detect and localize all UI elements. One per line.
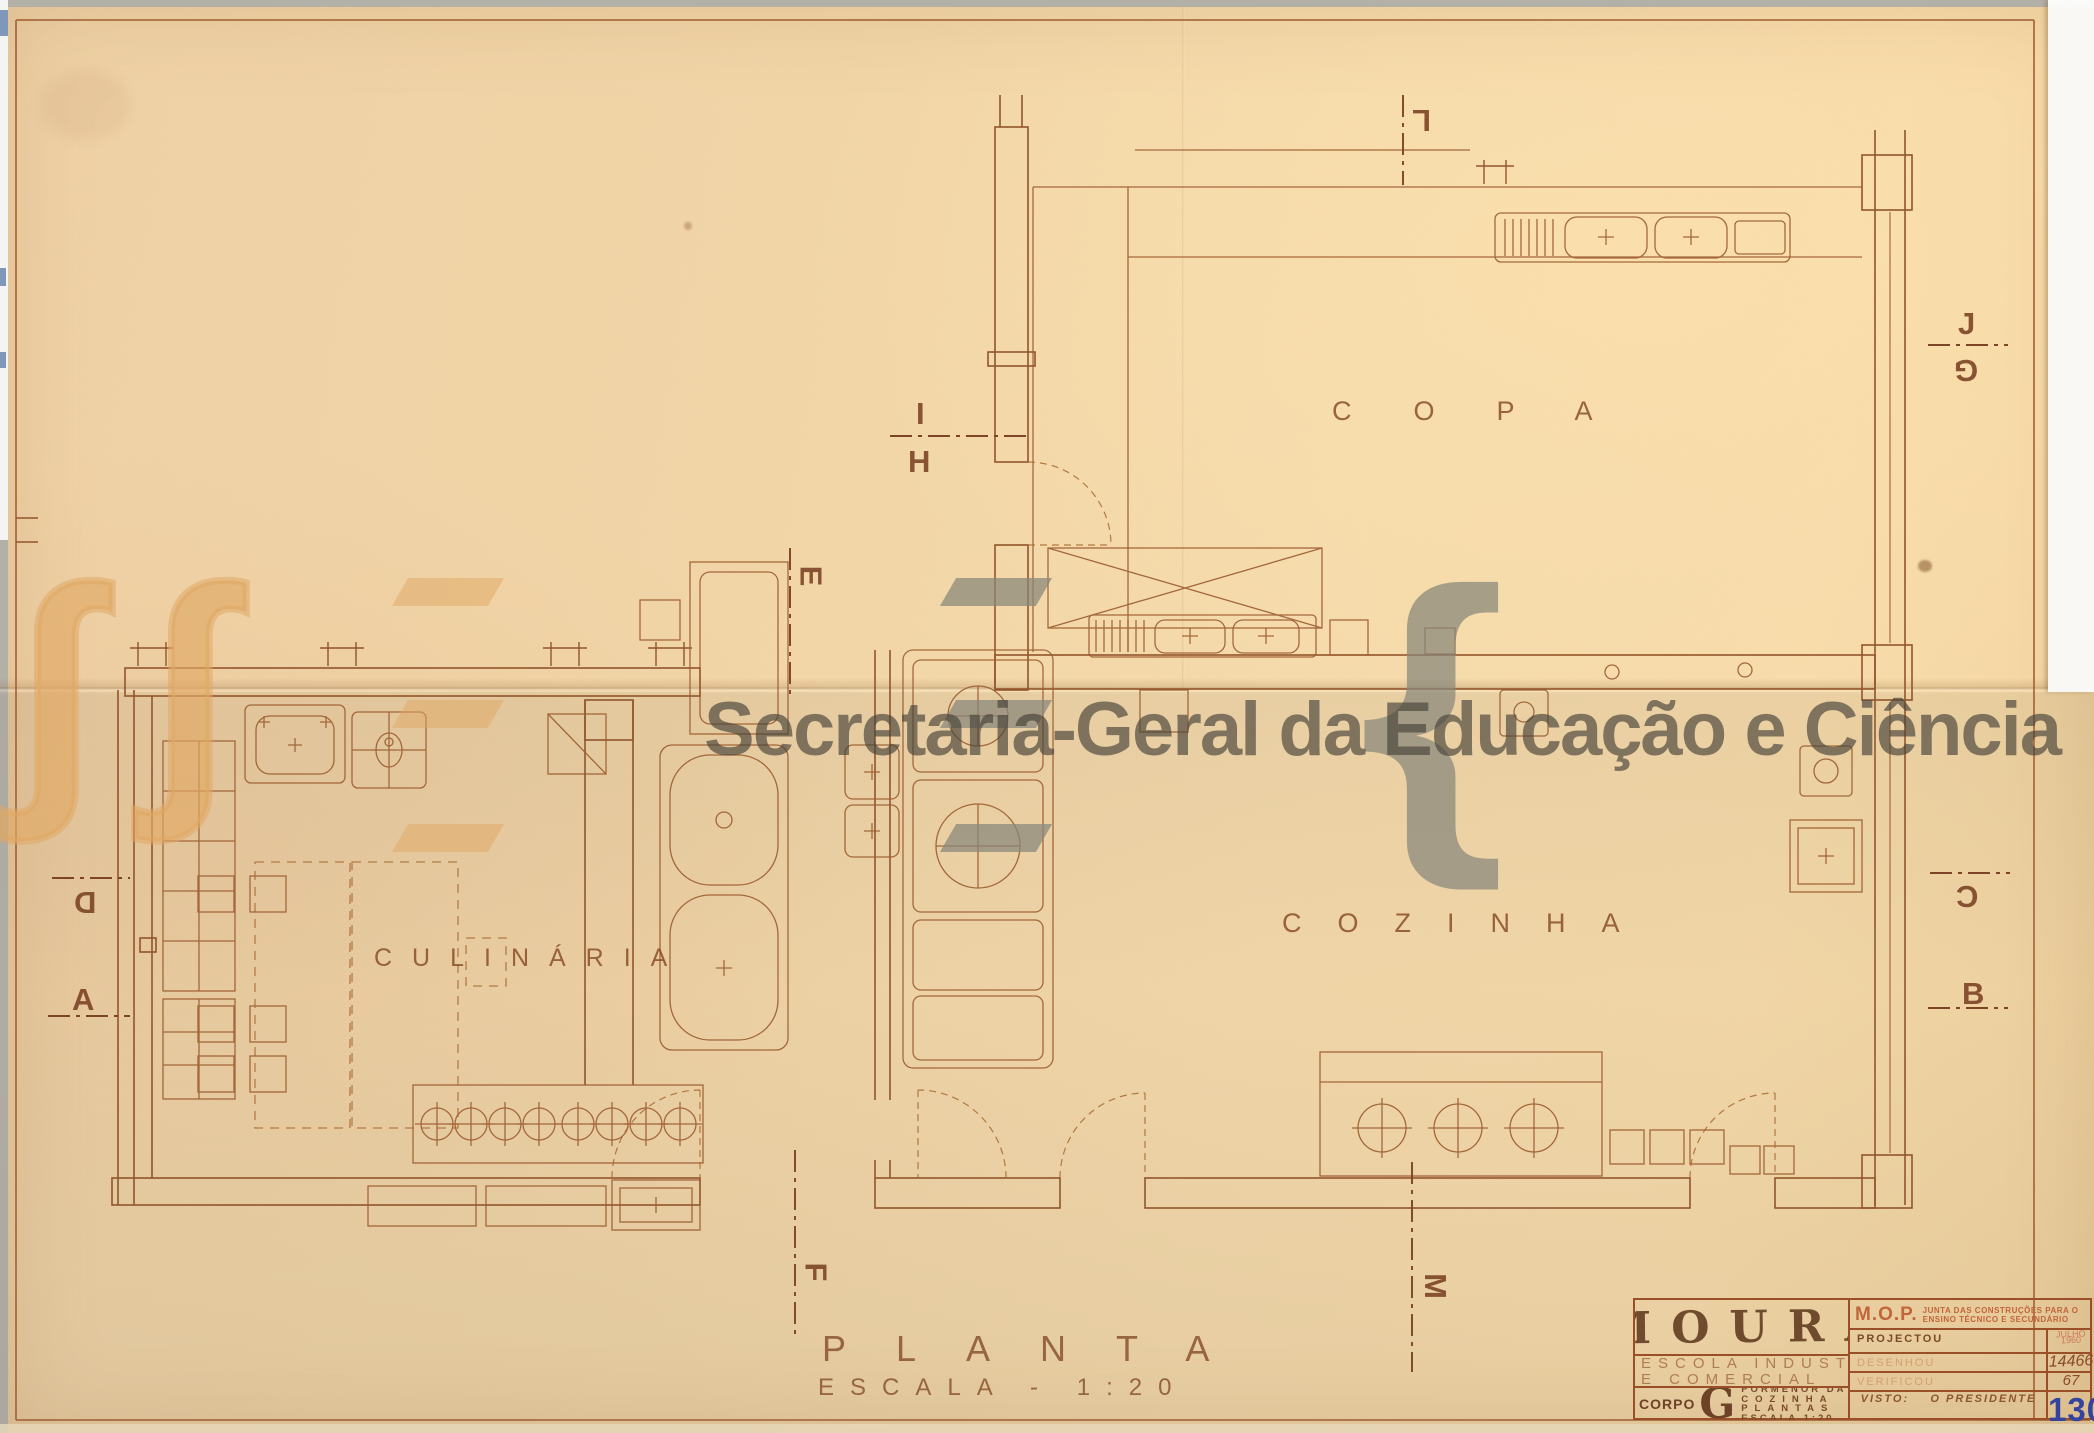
section-marker-c: C (1956, 878, 1978, 914)
title-block: MOURA ESCOLA INDUSTRIAL E COMERCIAL CORP… (1633, 1298, 2092, 1420)
watermark-logo-bar-icon (940, 578, 1052, 606)
ministry-subtitle: JUNTA DAS CONSTRUÇÕES PARA O ENSINO TÉCN… (1923, 1306, 2079, 1324)
watermark-logo-bar-icon (392, 824, 504, 852)
watermark-logo-stroke-icon: ∫ (18, 548, 93, 823)
section-marker-j: J (1958, 306, 1975, 342)
plan-title: PLANTA (822, 1328, 1259, 1370)
section-marker-m: M (1417, 1273, 1453, 1299)
sheet-number: 130 (2048, 1391, 2094, 1429)
section-marker-a: A (72, 982, 94, 1018)
school-name: ESCOLA INDUSTRIAL E COMERCIAL (1641, 1356, 1848, 1386)
section-marker-e: E (792, 566, 828, 587)
corpo-cell: CORPO G PORMENOR DA COZINHA PLANTAS ESCA… (1639, 1388, 1848, 1420)
ministry-subtitle-line: JUNTA DAS CONSTRUÇÕES PARA O (1923, 1306, 2079, 1315)
aux-number: 67 (2048, 1372, 2094, 1389)
ministry-acronym: M.O.P. (1855, 1304, 1918, 1326)
school-name-line2: E COMERCIAL (1641, 1372, 1848, 1386)
room-label-cozinha: COZINHA (1282, 908, 1656, 939)
watermark-logo-bar-icon (940, 824, 1052, 852)
section-marker-l: L (1412, 102, 1431, 138)
watermark-logo-bar-icon (392, 578, 504, 606)
school-name-line1: ESCOLA INDUSTRIAL (1641, 1356, 1848, 1372)
date-stamp-year: 1960 (2048, 1335, 2094, 1346)
room-label-copa: COPA (1332, 396, 1655, 427)
ministry-subtitle-line: ENSINO TÉCNICO E SECUNDÁRIO (1923, 1315, 2079, 1324)
plan-scale: ESCALA - 1:20 (818, 1374, 1187, 1402)
row-label-verificou: VERIFICOU (1857, 1376, 1935, 1388)
watermark-logo-stroke-icon: ∫ (152, 548, 227, 823)
section-marker-d: D (74, 884, 96, 920)
section-marker-b: B (1962, 976, 1984, 1012)
watermark-logo-bar-icon (392, 700, 504, 728)
visto-label: VISTO: (1861, 1393, 1909, 1405)
row-label-desenhou: DESENHOU (1857, 1357, 1935, 1369)
contractor-stamp: MOURA (1635, 1299, 1849, 1355)
corpo-label: CORPO (1639, 1396, 1695, 1412)
room-label-culinaria: CULINÁRIA (374, 944, 687, 973)
drawing-subject: PORMENOR DA COZINHA PLANTAS ESCALA 1:20 (1741, 1388, 1846, 1420)
drawing-subject-line: ESCALA 1:20 (1741, 1414, 1846, 1421)
section-marker-g: G (1954, 352, 1978, 388)
row-label-projectou: PROJECTOU (1857, 1333, 1943, 1345)
ministry-header: M.O.P. JUNTA DAS CONSTRUÇÕES PARA O ENSI… (1850, 1301, 2092, 1328)
section-marker-f: F (797, 1263, 833, 1282)
date-stamp: JULHO 1960 (2048, 1329, 2094, 1353)
process-number: 14466 (2048, 1352, 2094, 1372)
section-marker-i: I (916, 396, 925, 432)
section-marker-h: H (908, 444, 930, 480)
watermark-text: Secretaria-Geral da Educação e Ciência (704, 686, 2060, 773)
scanned-drawing-page: COPA COZINHA CULINÁRIA PLANTA ESCALA - 1… (0, 0, 2094, 1433)
corpo-letter: G (1699, 1389, 1735, 1419)
visto-value: O PRESIDENTE (1930, 1393, 2036, 1405)
approval-row: VISTO: O PRESIDENTE (1850, 1393, 2047, 1405)
